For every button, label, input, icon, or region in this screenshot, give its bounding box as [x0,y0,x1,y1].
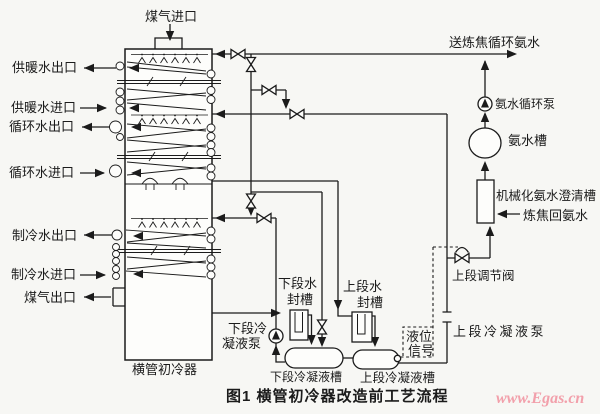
control-valve-icon [455,248,469,263]
upper-seal-tank [352,312,375,345]
upper-seal-tank-label-line1: 上段水 [343,280,382,294]
chilled-water-outlet-label: 制冷水出口 [12,229,77,243]
to-coking-ammonia-label: 送炼焦循环氨水 [449,36,540,50]
ammonia-tank-label: 氨水槽 [508,134,547,148]
upper-control-valve-label: 上段调节阀 [452,270,515,283]
gas-outlet-label: 煤气出口 [24,291,76,305]
level-signal-label-line2: 信号 [408,344,434,358]
coking-return-ammonia-label: 炼焦回氨水 [523,209,588,223]
heating-water-inlet-label: 供暖水进口 [11,101,76,115]
lower-seal-tank-label-line2: 封槽 [287,293,313,307]
chilled-water-inlet-label: 制冷水进口 [11,268,76,282]
cooler-tower [110,38,222,360]
ammonia-pump-label: 氨水循环泵 [495,98,555,111]
ammonia-pump-icon [478,97,492,111]
gas-inlet-arrow-icon [166,31,174,41]
level-signal-label-line1: 液位 [406,330,432,344]
process-flow-figure: 煤气进口 送炼焦循环氨水 供暖水出口 供暖水进口 循环水出口 循环水进口 制冷水… [0,0,600,414]
watermark: www.Egas.cn [496,391,584,408]
circulating-water-inlet-label: 循环水进口 [9,166,74,180]
heating-water-outlet-label: 供暖水出口 [12,61,77,75]
gas-inlet-label: 煤气进口 [145,10,197,24]
cooler-label: 横管初冷器 [132,363,197,377]
lower-seal-tank [290,310,312,343]
clarifier-vessel [477,180,494,223]
upper-condensate-pump-label: 上段冷凝液泵 [453,325,546,339]
lower-condensate-pump-icon [269,329,283,343]
lower-condensate-pump-label-line2: 凝液泵 [222,337,261,351]
clarifier-label: 机械化氨水澄清槽 [496,190,596,203]
lower-condensate-tank-label: 下段冷凝液槽 [270,371,342,384]
gas-outlet-duct [113,288,125,306]
upper-condensate-tank-vessel [353,350,399,369]
upper-condensate-tank-label: 上段冷凝液槽 [360,372,435,385]
lower-condensate-pump-label-line1: 下段冷 [228,322,267,336]
gas-inlet-duct [155,38,182,49]
level-tap-circle [394,355,400,361]
diagram-canvas [0,0,600,414]
ammonia-tank-vessel [469,128,501,158]
lower-condensate-tank-vessel [285,348,343,368]
upper-seal-tank-label-line2: 封槽 [357,296,383,310]
circulating-water-outlet-label: 循环水出口 [9,120,74,134]
figure-caption: 图1 横管初冷器改造前工艺流程 [226,389,449,405]
lower-seal-tank-label-line1: 下段水 [278,277,317,291]
